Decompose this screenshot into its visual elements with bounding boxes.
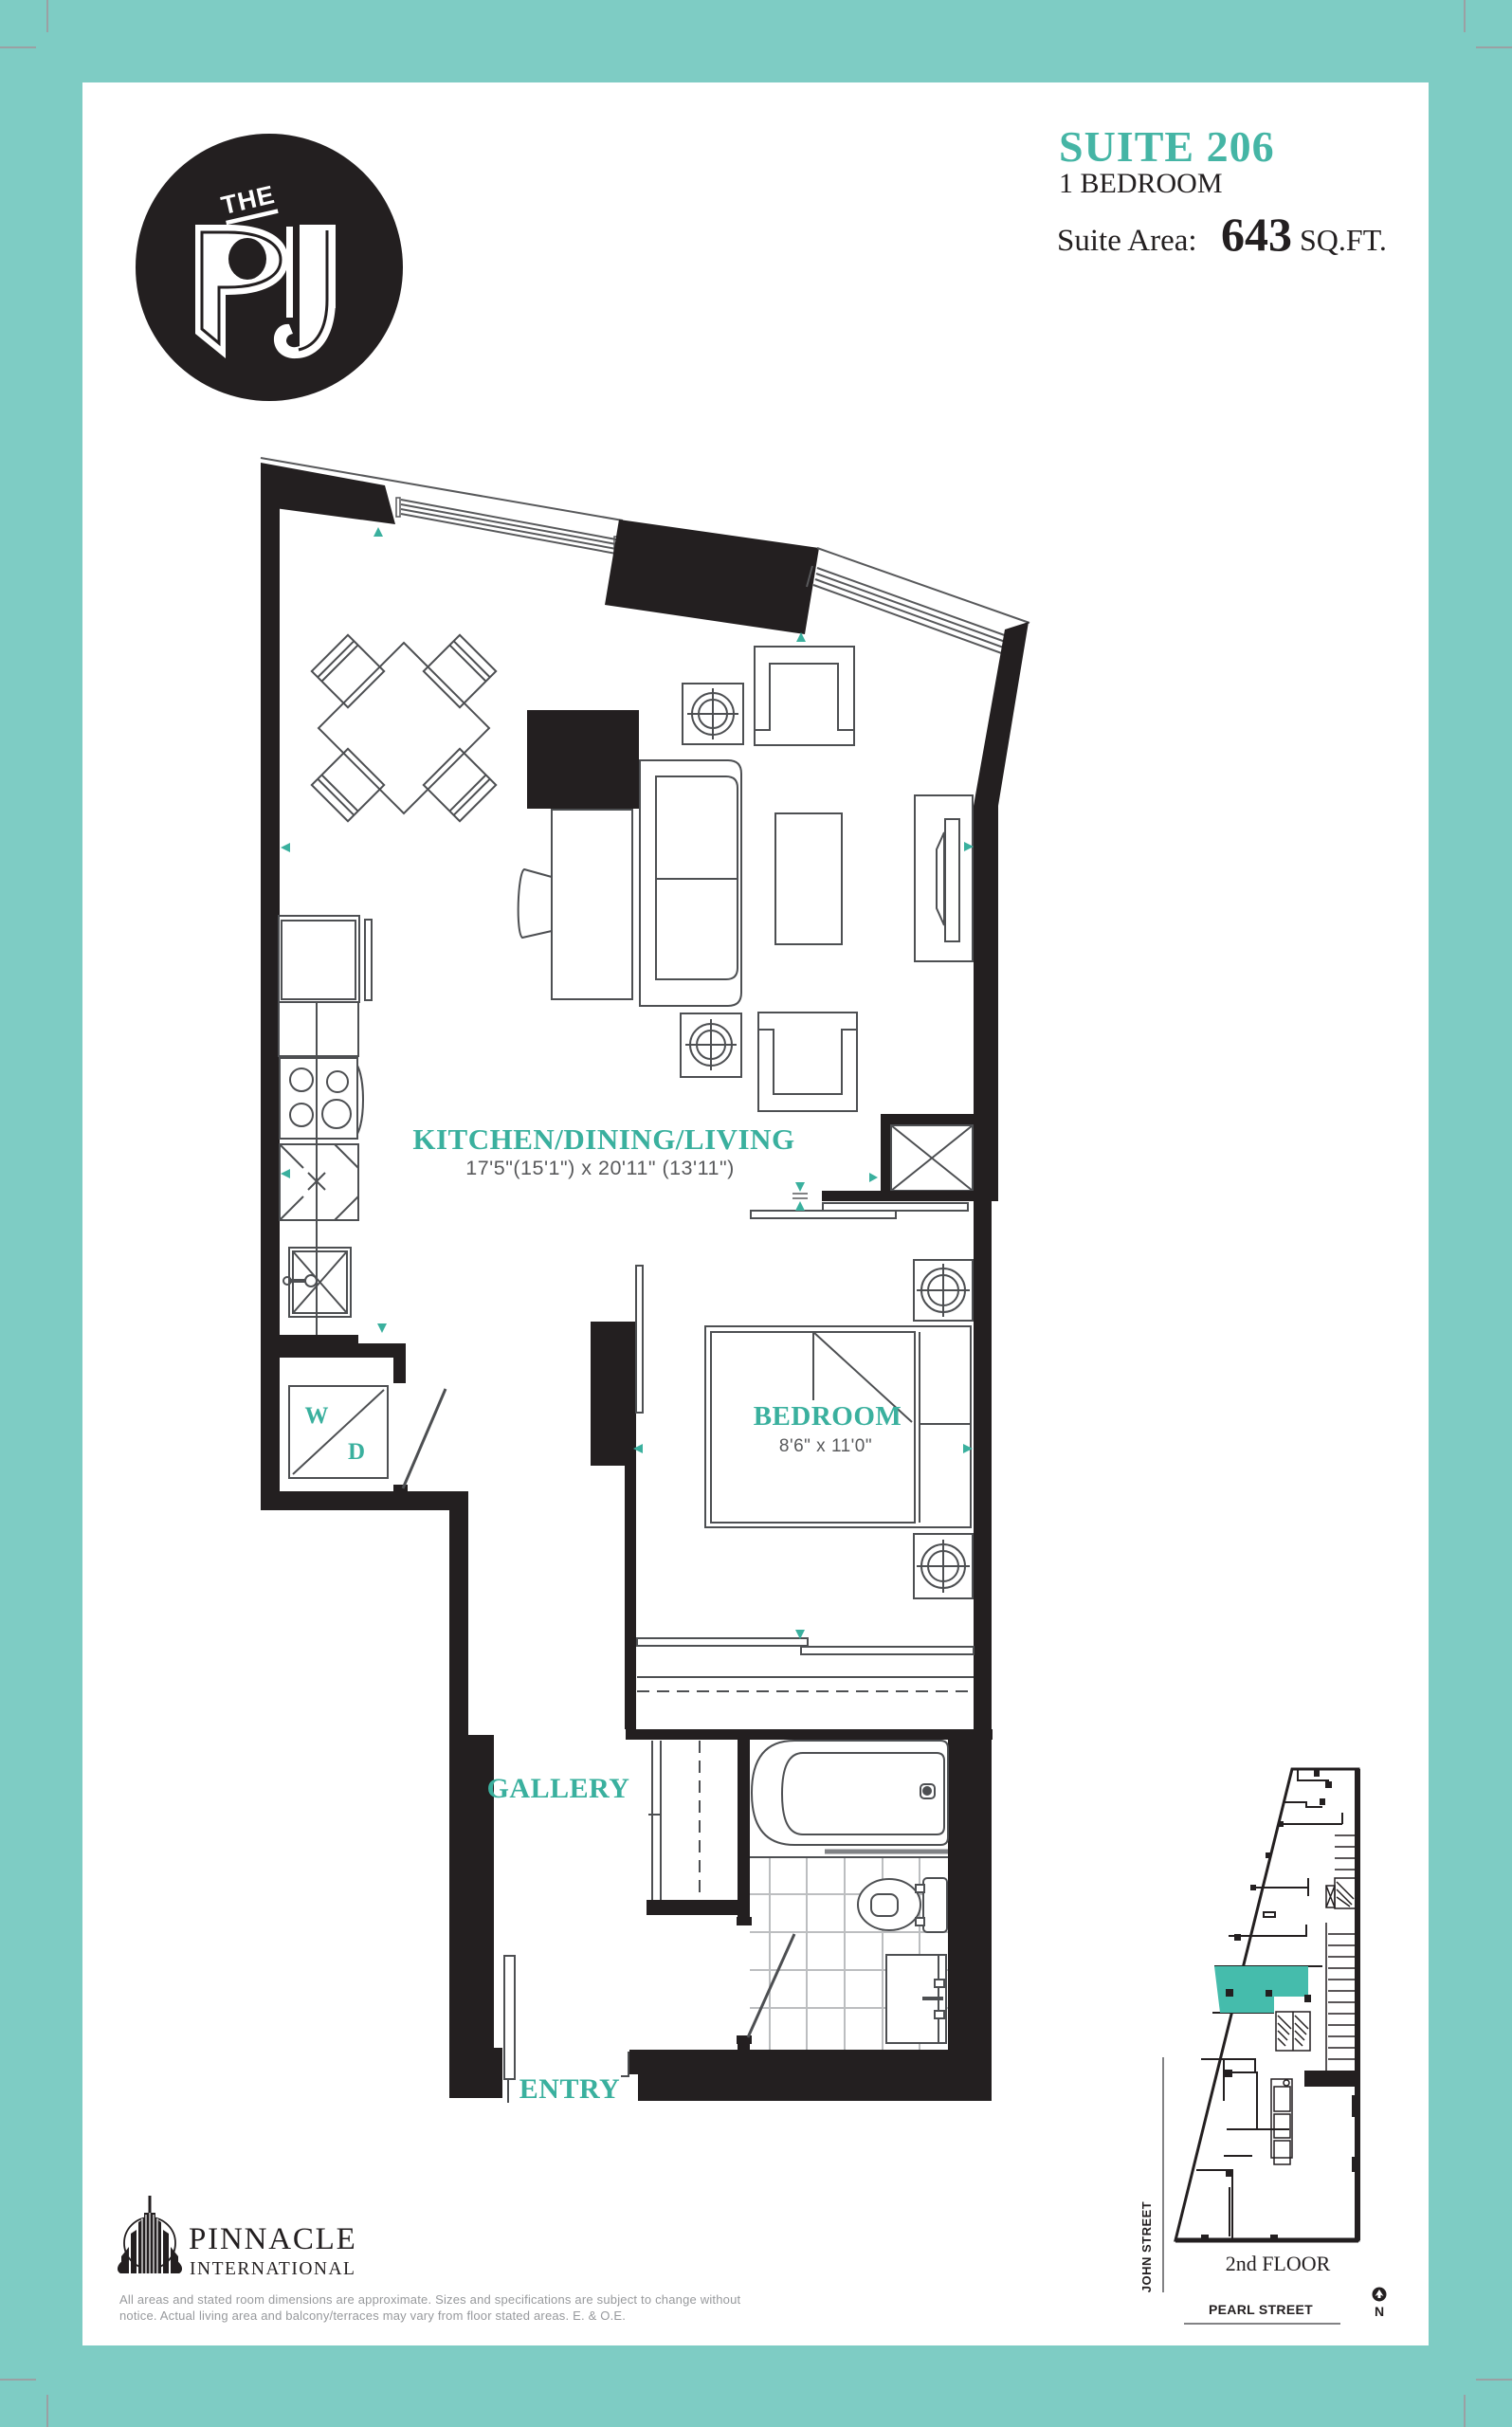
svg-text:1 BEDROOM: 1 BEDROOM bbox=[1059, 168, 1223, 199]
svg-text:SQ.FT.: SQ.FT. bbox=[1300, 223, 1387, 257]
svg-text:17'5"(15'1") x 20'11" (13'11"): 17'5"(15'1") x 20'11" (13'11") bbox=[465, 1157, 734, 1179]
svg-text:KITCHEN/DINING/LIVING: KITCHEN/DINING/LIVING bbox=[412, 1122, 794, 1156]
svg-text:8'6" x 11'0": 8'6" x 11'0" bbox=[779, 1436, 872, 1456]
svg-text:W: W bbox=[305, 1403, 329, 1429]
svg-text:INTERNATIONAL: INTERNATIONAL bbox=[190, 2259, 355, 2279]
svg-text:BEDROOM: BEDROOM bbox=[754, 1401, 902, 1432]
svg-text:Suite Area:: Suite Area: bbox=[1057, 224, 1197, 258]
svg-text:All areas and stated room dime: All areas and stated room dimensions are… bbox=[119, 2292, 741, 2307]
svg-text:PEARL STREET: PEARL STREET bbox=[1209, 2302, 1313, 2317]
svg-text:2nd FLOOR: 2nd FLOOR bbox=[1226, 2252, 1331, 2275]
svg-text:notice. Actual living area and: notice. Actual living area and balcony/t… bbox=[119, 2308, 626, 2323]
svg-text:GALLERY: GALLERY bbox=[487, 1773, 630, 1804]
svg-text:ENTRY: ENTRY bbox=[519, 2073, 620, 2105]
svg-text:JOHN STREET: JOHN STREET bbox=[1139, 2201, 1154, 2293]
svg-text:SUITE 206: SUITE 206 bbox=[1059, 122, 1275, 171]
svg-text:N: N bbox=[1375, 2304, 1384, 2319]
svg-text:PINNACLE: PINNACLE bbox=[189, 2222, 357, 2256]
svg-text:643: 643 bbox=[1221, 208, 1292, 261]
svg-text:D: D bbox=[348, 1439, 365, 1465]
